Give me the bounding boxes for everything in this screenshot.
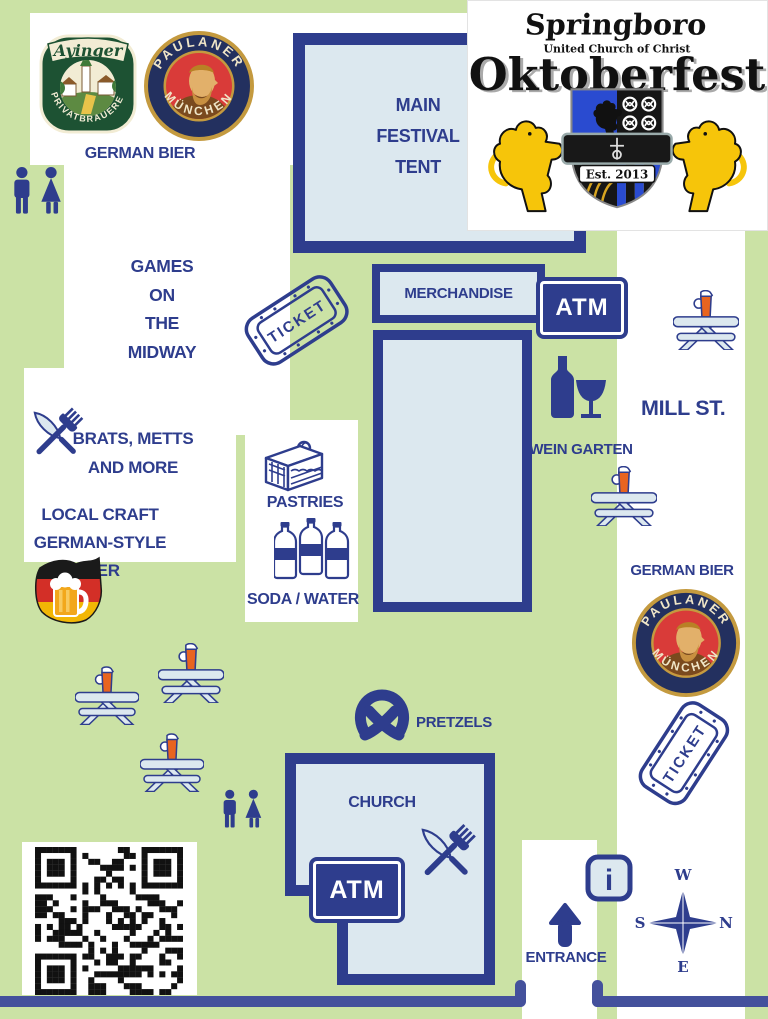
picnic-table-lawn-3 [140, 733, 204, 792]
compass-n: N [719, 914, 733, 932]
soda-water-label: SODA / WATER [243, 591, 363, 609]
picnic-table-lawn-1 [158, 643, 224, 703]
church-label: CHURCH [312, 794, 452, 812]
heraldic-lion-right [673, 121, 744, 211]
paulaner-logo-top: PAULANER MÜNCHEN [142, 29, 256, 143]
entrance-label: ENTRANCE [516, 949, 616, 966]
info-icon: i [584, 853, 634, 903]
ayinger-name: Ayinger [52, 41, 124, 60]
springboro-oktoberfest-logo: Springboro United Church of Christ Oktob… [467, 0, 768, 231]
games-midway-label: GAMES ON THE MIDWAY [102, 252, 222, 366]
pastries-label: PASTRIES [255, 494, 355, 512]
soda-bottles-icon [274, 518, 350, 582]
heraldic-lion-left [491, 121, 562, 211]
festival-map: MAIN FESTIVAL TENT MERCHANDISE Springbor… [0, 0, 768, 1019]
compass-w: W [674, 866, 693, 884]
pretzel-icon [352, 688, 412, 746]
road-cap-west [515, 980, 526, 1007]
paulaner-logo-mill: PAULANER MÜNCHEN [630, 587, 742, 699]
entrance-arrow-icon [548, 902, 582, 950]
crest-shield: Est. 2013 [562, 90, 671, 209]
fork-knife-icon-church [412, 818, 480, 888]
pretzels-label: PRETZELS [416, 714, 492, 731]
compass-s: S [635, 914, 646, 932]
road-bottom-west [0, 996, 525, 1007]
crest-est: Est. 2013 [586, 167, 649, 181]
ayinger-logo: Ayinger PRIVATBRAUEREI [38, 30, 138, 136]
ohio-german-beer-icon [32, 556, 106, 626]
restrooms-icon-lawn [215, 789, 269, 831]
german-bier-right-label: GERMAN BIER [612, 562, 752, 579]
picnic-table-mill-north [673, 290, 739, 350]
brats-label: BRATS, METTS AND MORE [58, 424, 208, 482]
compass-e: E [677, 958, 688, 976]
picnic-table-mill-south [591, 466, 657, 526]
qr-code [35, 847, 183, 995]
compass-rose: W N S E [630, 864, 736, 976]
wine-icon [546, 354, 610, 438]
atm-sign-church: ATM [313, 861, 401, 919]
restrooms-icon-top [10, 165, 64, 219]
merchandise-label: MERCHANDISE [372, 264, 545, 323]
cake-icon [260, 438, 328, 494]
road-bottom-east [592, 996, 768, 1007]
road-cap-east [592, 980, 603, 1007]
svg-text:i: i [605, 864, 613, 897]
mill-st-label: MILL ST. [641, 396, 725, 421]
crest-springboro: Springboro [524, 8, 707, 42]
wein-garten-label: WEIN GARTEN [521, 441, 641, 458]
picnic-table-lawn-2 [75, 666, 139, 725]
atm-sign-merchandise: ATM [540, 281, 624, 335]
central-hall [373, 330, 532, 612]
german-bier-top-label: GERMAN BIER [60, 145, 220, 163]
